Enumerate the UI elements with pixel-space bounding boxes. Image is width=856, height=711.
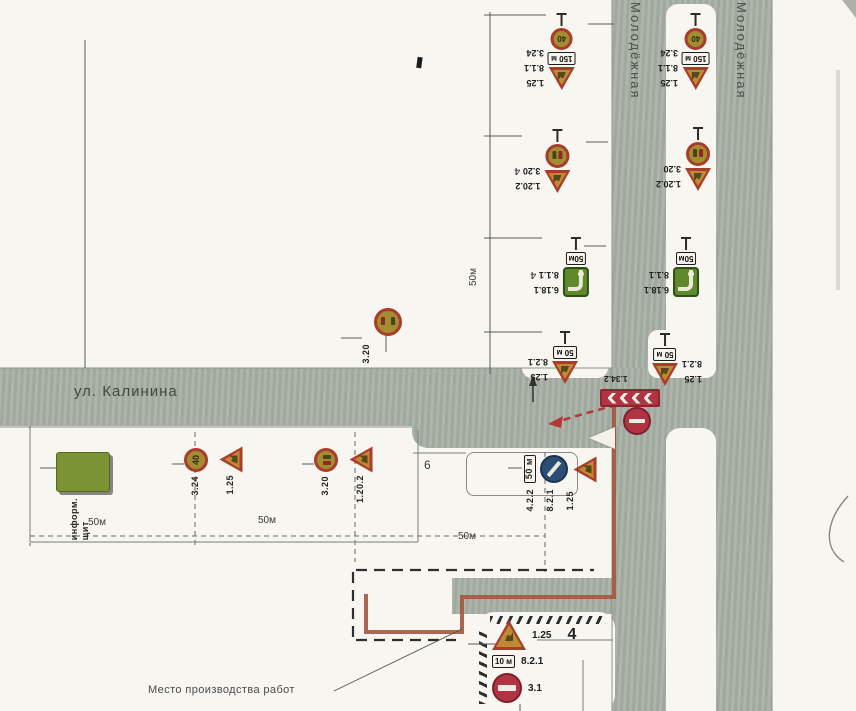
no-entry-sign-icon — [623, 407, 651, 435]
sign-post-icon — [575, 238, 577, 250]
sign-group-row3-left: 50м 6.18.1 8.1.1 4 — [530, 238, 589, 297]
sign-post-icon — [697, 128, 699, 140]
sign-row: 1.25 4 — [492, 620, 576, 650]
plate-text: 50 м — [557, 348, 574, 357]
label-8-1-1: 8.1.1 — [644, 270, 669, 280]
speed-value: 40 — [191, 455, 201, 465]
work-zone-sign-group: 1.25 4 10 м 8.2.1 3.1 — [492, 620, 576, 703]
label-3-20: 3.20 — [321, 476, 331, 496]
zone-plate-10m: 10 м — [492, 655, 515, 668]
label-6-18-1: 6.18.1 — [644, 285, 669, 295]
sign-group-row2-median: 1.20.2 3.20 — [656, 128, 711, 191]
building-number-6: 6 — [424, 458, 431, 472]
sign-stack: 50м — [673, 238, 699, 297]
sign-unit: 40 3.24 — [184, 448, 208, 496]
distance-plate-150m: 150 м — [682, 52, 710, 65]
label-8-1-1: 8.1.1 — [539, 270, 559, 280]
label-1-25: 1.25 — [566, 491, 576, 511]
sign-post-icon — [556, 130, 558, 142]
dimension-50m-seg3: 50м — [458, 531, 476, 542]
sign-labels: 1.25 8.2.1 — [528, 332, 548, 384]
no-overtaking-sign-icon — [374, 308, 402, 336]
label-3-20: 3.20 — [523, 166, 541, 176]
plate-text: 50 м — [656, 350, 673, 359]
sign-post-icon — [685, 238, 687, 250]
sign-group-row1-median: 150 м 40 1.25 8.1.1 3.24 — [658, 14, 710, 90]
plate-text: 150 м — [685, 54, 707, 63]
sign-labels: 6.18.1 8.1.1 — [644, 238, 669, 297]
no-overtaking-sign-icon — [545, 144, 569, 168]
sign-group-row4-median: 1.25 8.2.1 50 м — [652, 334, 702, 386]
roadworks-sign-icon — [492, 620, 526, 650]
handwritten-4: 4 — [514, 165, 520, 176]
plate-text: 50м — [679, 254, 694, 263]
chevron-left-icon — [620, 393, 629, 404]
sign-stack: 50 м — [552, 332, 578, 384]
detour-left-sign-icon — [540, 455, 568, 483]
plate-text: 50м — [569, 254, 584, 263]
label-1-34-2: 1.34.2 — [604, 374, 628, 384]
detour-direction-sign-icon — [673, 267, 699, 297]
label-8-1-1-row: 8.1.1 4 — [530, 269, 559, 280]
sign-stack: 50 м — [652, 334, 678, 386]
label-8-1-1: 8.1.1 — [658, 63, 678, 73]
zone-plate-50m-vertical: 50 м — [524, 455, 536, 482]
sign-group-obstacle-detour: 50 м 4.2.2 8.2.1 1.25 — [524, 455, 598, 512]
sign-post-icon — [564, 332, 566, 344]
label-3-20: 3.20 — [362, 344, 372, 364]
distance-plate-50m: 50м — [676, 252, 697, 265]
sign-post-icon — [664, 334, 666, 346]
chevron-left-icon — [632, 393, 641, 404]
chevron-left-icon — [608, 393, 617, 404]
linework-layer — [0, 0, 856, 711]
label-1-25: 1.25 — [532, 630, 551, 641]
label-3-20-row: 3.20 4 — [514, 165, 540, 176]
pavement-arrow-left-icon — [589, 427, 615, 449]
detour-info-board-icon — [56, 452, 110, 492]
sign-labels: 1.20.2 3.20 — [656, 128, 681, 191]
label-8-2-1: 8.2.1 — [682, 359, 702, 369]
dimension-50m-seg1: 50м — [88, 517, 106, 528]
sign-row: 50 м — [524, 455, 598, 483]
sign-post-icon — [561, 14, 563, 26]
sign-unit: 3.20 — [314, 448, 338, 503]
handwritten-4: 4 — [530, 269, 536, 280]
roadworks-sign-icon — [220, 447, 243, 473]
road-narrows-sign-icon — [350, 447, 373, 473]
no-entry-sign-icon — [492, 673, 522, 703]
sign-labels: 1.20.2 3.20 4 — [514, 130, 540, 193]
sign-labels: 1.25 8.1.1 3.24 — [658, 14, 678, 90]
street-name-molodezhnaya-right: Молодёжная — [734, 2, 749, 100]
building-number-4: 4 — [567, 626, 576, 644]
sign-group-row3-median: 50м 6.18.1 8.1.1 — [644, 238, 699, 297]
sign-labels: 6.18.1 8.1.1 4 — [530, 238, 559, 297]
sign-post-icon — [695, 14, 697, 26]
label-1-25: 1.25 — [524, 78, 544, 88]
sign-pair-320-1202: 3.20 1.20.2 — [314, 448, 374, 503]
roadworks-sign-icon — [549, 67, 575, 90]
label-1-20-2: 1.20.2 — [356, 475, 366, 503]
distance-plate-50m: 50м — [566, 252, 587, 265]
traffic-management-scheme: Молодёжная Молодёжная ул. Калинина 150 м… — [0, 0, 856, 711]
sign-unit: 1.20.2 — [348, 448, 374, 503]
label-1-20-2: 1.20.2 — [656, 179, 681, 189]
detour-direction-sign-icon — [563, 267, 589, 297]
sign-unit: 1.25 — [218, 448, 244, 496]
speed-limit-40-sign-icon: 40 — [551, 28, 573, 50]
sign-stack — [685, 128, 711, 191]
sign-labels: 1.25 8.1.1 3.24 — [524, 14, 544, 90]
work-site-note: Место производства работ — [148, 684, 295, 696]
sign-group-row1-left: 150 м 40 1.25 8.1.1 3.24 — [524, 14, 576, 90]
sign-stack: 150 м 40 — [682, 14, 710, 90]
zone-plate-50m: 50 м — [653, 348, 676, 361]
roadworks-sign-icon — [573, 456, 596, 482]
label-1-25: 1.25 — [658, 78, 678, 88]
no-overtaking-sign-icon — [314, 448, 338, 472]
street-name-kalinina: ул. Калинина — [74, 383, 178, 400]
road-narrows-sign-icon — [544, 170, 570, 193]
roadworks-sign-icon — [652, 363, 678, 386]
plate-text: 10 м — [495, 657, 512, 666]
label-3-24: 3.24 — [658, 48, 678, 58]
sign-stack: 50м — [563, 238, 589, 297]
speed-value: 40 — [557, 35, 566, 44]
speed-value: 40 — [691, 35, 700, 44]
label-1-25: 1.25 — [528, 372, 548, 382]
plate-text: 150 м — [551, 54, 573, 63]
label-1-20-2: 1.20.2 — [514, 181, 540, 191]
label-1-25: 1.25 — [226, 475, 236, 495]
label-3-24: 3.24 — [191, 476, 201, 496]
road-narrows-sign-icon — [685, 168, 711, 191]
label-8-2-1: 8.2.1 — [521, 656, 543, 667]
label-8-2-1: 8.2.1 — [546, 489, 556, 512]
speed-limit-40-sign-icon: 40 — [184, 448, 208, 472]
sign-stack: 150 м 40 — [548, 14, 576, 90]
sign-labels: 1.25 8.2.1 — [682, 334, 702, 386]
sign-row: 10 м 8.2.1 — [492, 655, 576, 668]
board-caption-line1: информ. — [70, 498, 80, 540]
sign-group-row2-left: 1.20.2 3.20 4 — [514, 130, 570, 193]
distance-plate-150m: 150 м — [548, 52, 576, 65]
dimension-50m-seg2: 50м — [258, 515, 276, 526]
dimension-50m-vertical: 50м — [468, 268, 479, 286]
chevron-board-icon — [600, 389, 660, 407]
no-overtaking-sign-icon — [686, 142, 710, 166]
street-name-molodezhnaya-left: Молодёжная — [628, 2, 643, 100]
plate-text: 50 м — [525, 458, 535, 479]
label-6-18-1: 6.18.1 — [530, 285, 559, 295]
sign-labels: 4.2.2 8.2.1 1.25 — [524, 489, 598, 512]
label-1-25: 1.25 — [682, 374, 702, 384]
chevron-left-icon — [644, 393, 653, 404]
label-8-1-1: 8.1.1 — [524, 63, 544, 73]
sign-stack — [544, 130, 570, 193]
sign-row: 3.1 — [492, 673, 576, 703]
label-3-20: 3.20 — [656, 164, 681, 174]
label-3-24: 3.24 — [524, 48, 544, 58]
label-3-1: 3.1 — [528, 683, 542, 694]
zone-plate-50m: 50 м — [554, 346, 577, 359]
sign-pair-324-125: 40 3.24 1.25 — [184, 448, 244, 496]
roadworks-sign-icon — [552, 361, 578, 384]
label-8-2-1: 8.2.1 — [528, 357, 548, 367]
speed-limit-40-sign-icon: 40 — [685, 28, 707, 50]
sign-group-row4-left: 50 м 1.25 8.2.1 — [528, 332, 578, 384]
label-4-2-2: 4.2.2 — [526, 489, 536, 512]
roadworks-sign-icon — [683, 67, 709, 90]
